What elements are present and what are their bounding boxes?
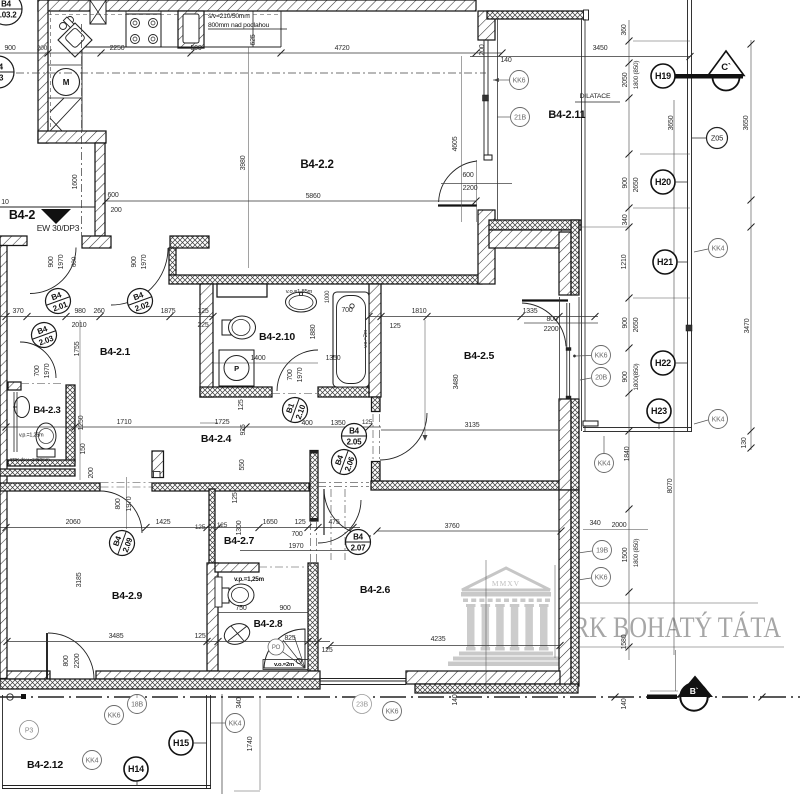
svg-text:B4-2.5: B4-2.5 — [464, 350, 495, 362]
svg-text:1740: 1740 — [247, 736, 254, 751]
svg-text:3760: 3760 — [445, 523, 460, 530]
svg-text:2010: 2010 — [72, 322, 87, 329]
svg-text:700: 700 — [287, 369, 294, 380]
svg-text:4235: 4235 — [431, 636, 446, 643]
svg-text:200: 200 — [479, 44, 486, 55]
svg-text:340: 340 — [589, 520, 600, 527]
svg-text:2650: 2650 — [633, 177, 640, 192]
svg-text:140: 140 — [452, 694, 459, 705]
svg-text:125: 125 — [389, 323, 400, 330]
svg-text:v.p.=1,25m: v.p.=1,25m — [19, 433, 44, 439]
svg-text:925: 925 — [240, 424, 247, 435]
svg-text:1970: 1970 — [58, 254, 65, 269]
svg-text:M: M — [63, 78, 70, 87]
svg-text:3650: 3650 — [668, 115, 675, 130]
svg-text:3980: 3980 — [240, 155, 247, 170]
svg-text:1725: 1725 — [215, 419, 230, 426]
svg-text:400: 400 — [301, 420, 312, 427]
svg-text:980: 980 — [74, 308, 85, 315]
svg-text:KK6: KK6 — [595, 353, 608, 360]
svg-text:KK6: KK6 — [108, 713, 121, 720]
svg-text:1810: 1810 — [412, 308, 427, 315]
svg-text:2250: 2250 — [110, 45, 125, 52]
svg-text:SDK do v.=2450mm: SDK do v.=2450mm — [10, 457, 50, 463]
svg-text:125: 125 — [232, 492, 239, 503]
svg-text:340: 340 — [622, 214, 629, 225]
svg-text:2200: 2200 — [74, 653, 81, 668]
svg-text:H14: H14 — [128, 764, 144, 774]
svg-text:1000: 1000 — [325, 290, 331, 303]
svg-text:H15: H15 — [173, 738, 189, 748]
svg-text:3185: 3185 — [76, 572, 83, 587]
svg-text:600: 600 — [462, 172, 473, 179]
svg-text:1710: 1710 — [117, 419, 132, 426]
svg-text:200: 200 — [88, 467, 95, 478]
svg-text:140: 140 — [500, 57, 511, 64]
svg-text:1650: 1650 — [263, 519, 278, 526]
svg-text:MMXV: MMXV — [492, 579, 520, 588]
svg-text:1335: 1335 — [523, 308, 538, 315]
svg-text:1875: 1875 — [161, 308, 176, 315]
svg-text:475: 475 — [328, 519, 339, 526]
svg-text:B4-2.7: B4-2.7 — [224, 535, 255, 547]
svg-text:KK6: KK6 — [386, 709, 399, 716]
svg-text:360: 360 — [621, 24, 628, 35]
svg-text:1210: 1210 — [621, 254, 628, 269]
svg-text:125: 125 — [195, 524, 206, 531]
svg-text:B4-2.3: B4-2.3 — [33, 405, 60, 416]
svg-text:2050: 2050 — [622, 72, 629, 87]
svg-text:2000: 2000 — [612, 522, 627, 529]
svg-text:H21: H21 — [657, 257, 673, 267]
svg-text:1400: 1400 — [251, 355, 266, 362]
svg-text:700: 700 — [34, 365, 41, 376]
svg-text:9.03.2: 9.03.2 — [0, 11, 17, 20]
svg-text:1250: 1250 — [78, 415, 85, 430]
svg-text:RK BOHATÝ TÁTA: RK BOHATÝ TÁTA — [573, 611, 781, 644]
svg-text:P: P — [234, 364, 239, 373]
svg-text:900: 900 — [131, 256, 138, 267]
svg-text:1880: 1880 — [310, 324, 317, 339]
svg-text:125: 125 — [197, 308, 208, 315]
svg-text:1800 (850): 1800 (850) — [633, 61, 640, 90]
svg-text:KK6: KK6 — [513, 78, 526, 85]
svg-text:B`: B` — [690, 686, 699, 696]
svg-text:370: 370 — [12, 308, 23, 315]
svg-text:800: 800 — [546, 316, 557, 323]
svg-text:3480: 3480 — [453, 374, 460, 389]
svg-text:19B: 19B — [596, 548, 608, 555]
svg-text:1500: 1500 — [622, 547, 629, 562]
svg-text:600: 600 — [107, 192, 118, 199]
svg-text:B4: B4 — [1, 0, 12, 9]
svg-text:800: 800 — [63, 655, 70, 666]
svg-text:125: 125 — [294, 519, 305, 526]
svg-text:125: 125 — [194, 633, 205, 640]
svg-text:H19: H19 — [655, 71, 671, 81]
svg-text:KK4: KK4 — [712, 417, 725, 424]
svg-text:700: 700 — [341, 307, 352, 314]
svg-text:B4-2.1: B4-2.1 — [100, 346, 131, 358]
svg-text:H20: H20 — [655, 177, 671, 187]
svg-text:KK6: KK6 — [595, 575, 608, 582]
svg-text:1600: 1600 — [72, 174, 79, 189]
svg-text:125: 125 — [238, 399, 245, 410]
svg-text:B4-2.12: B4-2.12 — [27, 759, 63, 771]
svg-text:1300: 1300 — [236, 520, 243, 535]
svg-text:150: 150 — [80, 443, 87, 454]
svg-text:140: 140 — [621, 698, 628, 709]
svg-text:3135: 3135 — [465, 422, 480, 429]
svg-text:H23: H23 — [651, 406, 667, 416]
svg-text:P3: P3 — [25, 728, 33, 735]
svg-text:700: 700 — [291, 531, 302, 538]
svg-text:C`: C` — [721, 62, 731, 73]
svg-text:Z05: Z05 — [711, 134, 723, 143]
svg-text:KK4: KK4 — [598, 461, 611, 468]
svg-text:2200: 2200 — [463, 185, 478, 192]
svg-text:B4-2.2: B4-2.2 — [300, 159, 333, 171]
svg-text:8070: 8070 — [667, 478, 674, 493]
svg-text:4605: 4605 — [452, 136, 459, 151]
svg-text:2.07: 2.07 — [351, 544, 367, 553]
svg-text:900: 900 — [4, 45, 15, 52]
svg-text:1425: 1425 — [156, 519, 171, 526]
svg-text:2200: 2200 — [544, 326, 559, 333]
svg-text:260: 260 — [93, 308, 104, 315]
svg-text:B4-2.10: B4-2.10 — [259, 331, 295, 343]
svg-text:130: 130 — [741, 437, 748, 448]
svg-text:3650: 3650 — [743, 115, 750, 130]
svg-text:18B: 18B — [131, 702, 143, 709]
svg-text:200: 200 — [37, 45, 48, 52]
svg-text:3485: 3485 — [109, 633, 124, 640]
svg-text:900: 900 — [48, 256, 55, 267]
svg-text:KK4: KK4 — [229, 721, 242, 728]
svg-text:750: 750 — [235, 605, 246, 612]
svg-text:KK4: KK4 — [86, 758, 99, 765]
svg-text:23B: 23B — [356, 702, 368, 709]
svg-text:21B: 21B — [514, 115, 526, 122]
svg-text:1970: 1970 — [44, 363, 51, 378]
svg-text:v.o.=2m: v.o.=2m — [363, 329, 369, 348]
svg-text:340: 340 — [236, 697, 243, 708]
svg-text:3450: 3450 — [593, 45, 608, 52]
svg-text:B4-2.6: B4-2.6 — [360, 584, 391, 596]
svg-text:20B: 20B — [595, 375, 607, 382]
svg-text:B4: B4 — [353, 533, 364, 542]
svg-text:2060: 2060 — [66, 519, 81, 526]
svg-text:900: 900 — [622, 177, 629, 188]
svg-text:825: 825 — [284, 635, 295, 642]
svg-text:4720: 4720 — [335, 45, 350, 52]
svg-text:1970: 1970 — [289, 543, 304, 550]
svg-text:1970: 1970 — [141, 254, 148, 269]
svg-text:1350: 1350 — [326, 355, 341, 362]
svg-text:1970: 1970 — [126, 496, 133, 511]
svg-text:3470: 3470 — [744, 318, 751, 333]
svg-text:1350: 1350 — [331, 420, 346, 427]
svg-text:1800(850): 1800(850) — [633, 363, 640, 390]
svg-text:B4-2.4: B4-2.4 — [201, 433, 232, 445]
svg-text:800: 800 — [115, 498, 122, 509]
svg-text:2650: 2650 — [633, 317, 640, 332]
svg-text:B4-2.8: B4-2.8 — [254, 619, 283, 630]
svg-text:v.o.=2m: v.o.=2m — [274, 662, 294, 668]
svg-text:B4-2.9: B4-2.9 — [112, 590, 143, 602]
svg-text:DILATACE: DILATACE — [580, 93, 611, 100]
svg-text:H22: H22 — [655, 358, 671, 368]
svg-text:1970: 1970 — [297, 367, 304, 382]
svg-text:EW 30/DP3: EW 30/DP3 — [37, 223, 80, 233]
svg-text:550: 550 — [239, 459, 246, 470]
svg-text:200: 200 — [110, 207, 121, 214]
svg-text:PO: PO — [272, 645, 281, 651]
svg-text:5860: 5860 — [306, 193, 321, 200]
svg-text:š/v=210/50mm: š/v=210/50mm — [208, 13, 250, 20]
svg-text:600: 600 — [71, 256, 78, 267]
svg-text:625: 625 — [250, 34, 257, 45]
svg-text:125: 125 — [217, 522, 228, 529]
svg-text:B4: B4 — [349, 427, 360, 436]
svg-text:1800 (850): 1800 (850) — [633, 539, 640, 568]
svg-text:900: 900 — [622, 371, 629, 382]
svg-text:2.05: 2.05 — [347, 438, 363, 447]
svg-text:900: 900 — [279, 605, 290, 612]
svg-text:900: 900 — [622, 317, 629, 328]
svg-text:1840: 1840 — [624, 446, 631, 461]
svg-text:KK4: KK4 — [712, 246, 725, 253]
svg-text:800mm nad podlahou: 800mm nad podlahou — [208, 22, 270, 29]
svg-text:225: 225 — [197, 322, 208, 329]
svg-text:500: 500 — [190, 45, 201, 52]
svg-text:v.o.=1,85m: v.o.=1,85m — [286, 289, 313, 295]
svg-text:10: 10 — [1, 199, 9, 206]
svg-text:B4-2: B4-2 — [9, 208, 36, 222]
svg-text:v.p.=1,25m: v.p.=1,25m — [234, 576, 265, 583]
svg-text:B4-2.11: B4-2.11 — [548, 109, 585, 121]
